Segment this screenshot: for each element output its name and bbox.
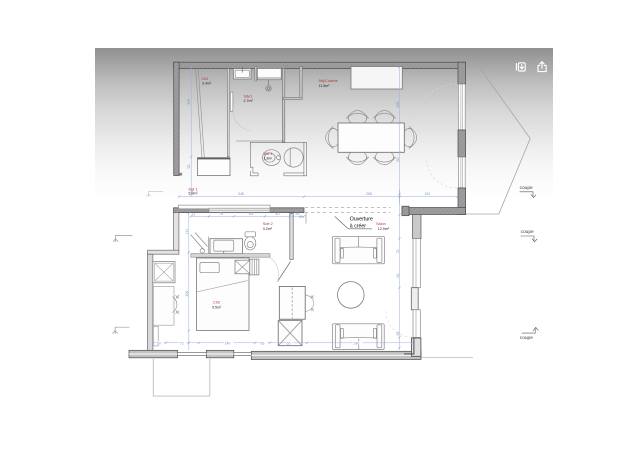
svg-text:75: 75 xyxy=(219,212,223,216)
svg-text:à créer: à créer xyxy=(350,223,366,229)
svg-text:265: 265 xyxy=(366,192,372,196)
svg-text:140: 140 xyxy=(225,341,231,345)
svg-text:3.2m²: 3.2m² xyxy=(263,227,273,231)
svg-text:65: 65 xyxy=(287,341,291,345)
svg-text:Ch2: Ch2 xyxy=(213,301,220,305)
svg-text:Sde1: Sde1 xyxy=(244,94,253,98)
svg-text:66: 66 xyxy=(261,341,265,345)
svg-text:40: 40 xyxy=(276,212,280,216)
svg-text:5.9m²: 5.9m² xyxy=(189,192,199,196)
svg-text:Sde 2: Sde 2 xyxy=(263,222,273,226)
svg-text:coupe: coupe xyxy=(521,230,534,235)
svg-text:60: 60 xyxy=(396,158,400,162)
svg-text:12.9m²: 12.9m² xyxy=(378,227,390,231)
svg-text:280: 280 xyxy=(354,341,360,345)
svg-text:151: 151 xyxy=(425,192,431,196)
svg-text:1.3m²: 1.3m² xyxy=(264,156,274,160)
svg-text:50: 50 xyxy=(157,341,161,345)
svg-text:239: 239 xyxy=(187,99,191,105)
svg-text:9.5m²: 9.5m² xyxy=(212,306,222,310)
svg-text:coupe: coupe xyxy=(520,336,533,341)
svg-text:Salon: Salon xyxy=(376,222,386,226)
svg-text:72: 72 xyxy=(396,250,400,254)
svg-text:141: 141 xyxy=(185,229,189,235)
svg-text:200: 200 xyxy=(185,291,189,297)
svg-text:60: 60 xyxy=(299,215,303,219)
svg-text:62: 62 xyxy=(396,274,400,278)
svg-text:coupe: coupe xyxy=(520,186,533,191)
svg-text:11.5m²: 11.5m² xyxy=(319,84,331,88)
svg-text:255: 255 xyxy=(396,102,400,108)
svg-text:52: 52 xyxy=(396,332,400,336)
svg-text:Ouverture: Ouverture xyxy=(350,217,373,223)
svg-text:52: 52 xyxy=(187,165,191,169)
svg-text:63: 63 xyxy=(249,212,253,216)
svg-text:19: 19 xyxy=(192,212,196,216)
svg-text:348: 348 xyxy=(238,192,244,196)
svg-text:3.4m²: 3.4m² xyxy=(202,81,212,85)
svg-text:Séj/Cuisine: Séj/Cuisine xyxy=(319,79,338,83)
svg-text:71: 71 xyxy=(180,341,184,345)
svg-text:2.7m²: 2.7m² xyxy=(244,99,254,103)
